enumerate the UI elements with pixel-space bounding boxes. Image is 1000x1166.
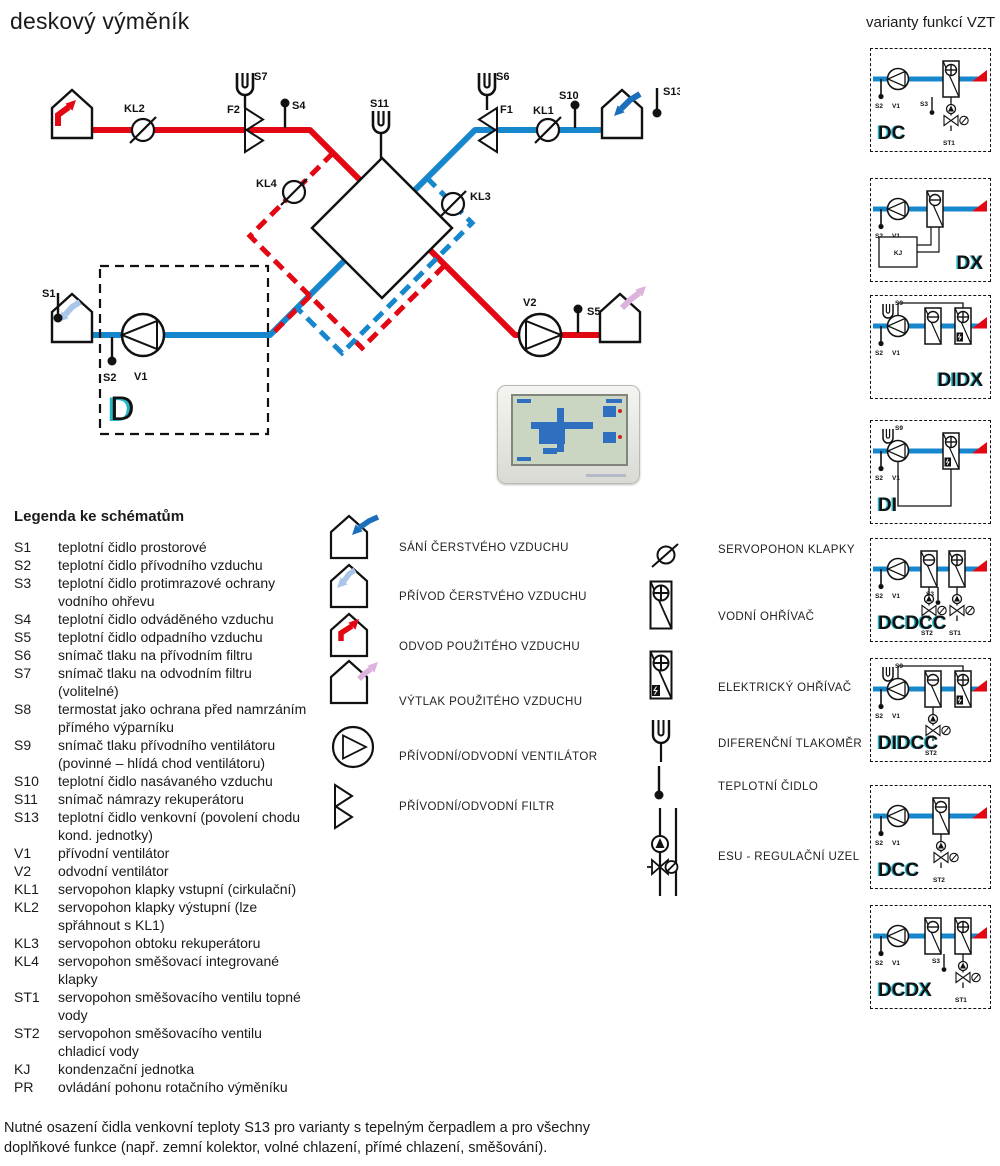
label-s11: S11 — [370, 98, 389, 110]
legend-def: servopohon klapky vstupní (cirkulační) — [58, 880, 312, 898]
label-s4: S4 — [292, 100, 306, 112]
label-kl3: KL3 — [470, 191, 491, 203]
variant-label: DC — [878, 123, 906, 144]
legend-def: snímač tlaku na odvodním filtru (volitel… — [58, 664, 312, 700]
legend-term: S9 — [14, 736, 58, 772]
variant-mini-schematic: S2V1S9DIDI — [871, 421, 989, 522]
variant-dcdx: S2V1S3ST1DCDXDCDX — [870, 905, 991, 1009]
mini-gauge-s9 — [883, 304, 893, 318]
water-heater-icon — [649, 580, 673, 630]
svg-text:S2: S2 — [875, 713, 883, 720]
legend-def: teplotní čidlo odpadního vzduchu — [58, 628, 312, 646]
legend-def: termostat jako ochrana před namrzáním př… — [58, 700, 312, 736]
variant-mini-schematic: S2V1S3ST1DCDC — [871, 49, 989, 150]
svg-text:V1: V1 — [892, 475, 900, 482]
sensor-s4 — [281, 99, 290, 129]
footnote-line2: doplňkové funkce (např. zemní kolektor, … — [4, 1138, 590, 1158]
svg-text:S9: S9 — [895, 425, 903, 432]
variant-label: DX — [957, 253, 984, 274]
legend-term: S6 — [14, 646, 58, 664]
svg-text:V1: V1 — [892, 840, 900, 847]
svg-text:ST1: ST1 — [955, 997, 967, 1004]
legend-term: V2 — [14, 862, 58, 880]
legend-item: S1teplotní čidlo prostorové — [14, 538, 324, 556]
legend-item: S7snímač tlaku na odvodním filtru (volit… — [14, 664, 324, 700]
variant-didcc: S2V1S9ST2DIDCCDIDCC — [870, 658, 991, 762]
label-s5: S5 — [587, 306, 600, 318]
label-f2: F2 — [227, 104, 240, 116]
symbol-label: SERVOPOHON KLAPKY — [718, 544, 855, 556]
legend-term: KL2 — [14, 898, 58, 934]
variant-mini-schematic: S2V1ST2DCCDCC — [871, 786, 989, 887]
symbol-label: DIFERENČNÍ TLAKOMĚR — [718, 738, 862, 750]
controller-logo — [586, 474, 626, 477]
legend-term: ST1 — [14, 988, 58, 1024]
legend-term: ST2 — [14, 1024, 58, 1060]
variant-dcdcc: S2V1ST2S3ST1DCDCCDCDCC — [870, 538, 991, 642]
house-discharge-icon — [326, 657, 384, 707]
mini-red-wedge — [972, 807, 987, 819]
variant-mini-schematic: S2V1S9ST2DIDCCDIDCC — [871, 659, 989, 760]
label-kl1: KL1 — [533, 105, 554, 117]
legend-term: S13 — [14, 808, 58, 844]
legend-def: teplotní čidlo nasávaného vzduchu — [58, 772, 312, 790]
variant-di: S2V1S9DIDI — [870, 420, 991, 524]
filter-icon — [333, 783, 355, 831]
legend-def: teplotní čidlo odváděného vzduchu — [58, 610, 312, 628]
svg-text:V1: V1 — [892, 960, 900, 967]
label-v1: V1 — [134, 371, 147, 383]
legend-term: KL1 — [14, 880, 58, 898]
legend-term: S4 — [14, 610, 58, 628]
sensor-s5 — [574, 305, 583, 334]
symbol-label: VÝTLAK POUŽITÉHO VZDUCHU — [399, 696, 582, 708]
house-exhaust-from-room — [52, 90, 92, 138]
variant-didx: S2V1S9DIDXDIDX — [870, 295, 991, 399]
house-intake-icon — [328, 512, 384, 562]
legend-def: servopohon směšovací integrované klapky — [58, 952, 312, 988]
differential-manometer-icon — [650, 718, 672, 764]
legend-item: ST1servopohon směšovacího ventilu topné … — [14, 988, 324, 1024]
legend-term: S10 — [14, 772, 58, 790]
legend-def: teplotní čidlo venkovní (povolení chodu … — [58, 808, 312, 844]
svg-text:S3: S3 — [932, 958, 940, 965]
legend-term: S7 — [14, 664, 58, 700]
legend-item: S11snímač námrazy rekuperátoru — [14, 790, 324, 808]
legend-term: S11 — [14, 790, 58, 808]
mini-red-wedge — [972, 70, 987, 82]
legend-term: KJ — [14, 1060, 58, 1078]
label-s6: S6 — [496, 71, 509, 83]
mini-gauge-s9 — [883, 667, 893, 681]
fan-v2 — [519, 314, 561, 356]
svg-text:S2: S2 — [875, 840, 883, 847]
variant-mini-schematic: S2V1S9DIDXDIDX — [871, 296, 989, 397]
fan-icon — [330, 724, 376, 770]
legend-item: V1přívodní ventilátor — [14, 844, 324, 862]
label-s10: S10 — [559, 90, 579, 102]
svg-text:S3: S3 — [926, 591, 934, 598]
legend-title: Legenda ke schématům — [14, 508, 324, 525]
legend-term: PR — [14, 1078, 58, 1096]
controller-screen — [511, 394, 628, 466]
legend-term: S5 — [14, 628, 58, 646]
legend-item: S3teplotní čidlo protimrazové ochrany vo… — [14, 574, 324, 610]
legend-item: KL4servopohon směšovací integrované klap… — [14, 952, 324, 988]
legend-item: KL3servopohon obtoku rekuperátoru — [14, 934, 324, 952]
label-v2: V2 — [523, 297, 536, 309]
symbol-label: ELEKTRICKÝ OHŘÍVAČ — [718, 682, 852, 694]
variant-dc: S2V1S3ST1DCDC — [870, 48, 991, 152]
damper-kl2 — [130, 117, 156, 143]
svg-text:S2: S2 — [875, 593, 883, 600]
legend: Legenda ke schématům S1teplotní čidlo pr… — [14, 508, 324, 1096]
gauge-s7 — [237, 73, 253, 95]
variant-label: DIDX — [938, 370, 984, 391]
variant-mini-schematic: S2V1ST2S3ST1DCDCCDCDCC — [871, 539, 989, 640]
legend-def: ovládání pohonu rotačního výměníku — [58, 1078, 312, 1096]
mini-gauge-s9 — [883, 429, 893, 443]
svg-text:V1: V1 — [892, 103, 900, 110]
mini-red-wedge — [972, 927, 987, 939]
label-kl4: KL4 — [256, 178, 278, 190]
symbol-label: ESU - REGULAČNÍ UZEL — [718, 851, 860, 863]
symbol-label: ODVOD POUŽITÉHO VZDUCHU — [399, 641, 580, 653]
legend-item: S10teplotní čidlo nasávaného vzduchu — [14, 772, 324, 790]
damper-kl1 — [535, 117, 561, 143]
esu-node-icon — [647, 808, 681, 900]
legend-term: S2 — [14, 556, 58, 574]
label-kl2: KL2 — [124, 103, 145, 115]
symbol-label: SÁNÍ ČERSTVÉHO VZDUCHU — [399, 542, 569, 554]
legend-item: KL2servopohon klapky výstupní (lze spřáh… — [14, 898, 324, 934]
legend-def: servopohon směšovacího ventilu chladicí … — [58, 1024, 312, 1060]
house-supply-icon — [328, 561, 384, 611]
legend-item: V2odvodní ventilátor — [14, 862, 324, 880]
page: deskový výměník varianty funkcí VZT — [0, 0, 1000, 1166]
variant-label: DIDCC — [878, 733, 938, 754]
house-fresh-intake — [602, 90, 642, 138]
legend-def: přívodní ventilátor — [58, 844, 312, 862]
legend-item: S9snímač tlaku přívodního ventilátoru (p… — [14, 736, 324, 772]
footnote-line1: Nutné osazení čidla venkovní teploty S13… — [4, 1118, 590, 1138]
variant-mini-schematic: S2V1KJDXDX — [871, 179, 989, 280]
variant-dx: S2V1KJDXDX — [870, 178, 991, 282]
label-s7: S7 — [254, 71, 267, 83]
legend-item: S4teplotní čidlo odváděného vzduchu — [14, 610, 324, 628]
legend-def: kondenzační jednotka — [58, 1060, 312, 1078]
label-s13: S13 — [663, 86, 680, 98]
variant-label: DCC — [878, 860, 919, 881]
temperature-sensor-icon — [653, 766, 665, 800]
legend-item: ST2servopohon směšovacího ventilu chladi… — [14, 1024, 324, 1060]
controller-panel — [497, 385, 640, 484]
svg-text:ST2: ST2 — [933, 877, 945, 884]
svg-text:S3: S3 — [920, 101, 928, 108]
variants-header: varianty funkcí VZT — [866, 14, 995, 31]
legend-list: S1teplotní čidlo prostorovéS2teplotní či… — [14, 538, 324, 1096]
damper-kl4 — [281, 179, 307, 205]
variant-dcc: S2V1ST2DCCDCC — [870, 785, 991, 889]
svg-text:S2: S2 — [875, 960, 883, 967]
legend-term: S3 — [14, 574, 58, 610]
legend-term: S1 — [14, 538, 58, 556]
legend-item: KL1servopohon klapky vstupní (cirkulační… — [14, 880, 324, 898]
legend-term: S8 — [14, 700, 58, 736]
house-extract-icon — [328, 610, 384, 660]
legend-def: teplotní čidlo prostorové — [58, 538, 312, 556]
sensor-s2 — [108, 337, 117, 366]
legend-item: S13teplotní čidlo venkovní (povolení cho… — [14, 808, 324, 844]
svg-text:S2: S2 — [875, 350, 883, 357]
fan-v1 — [122, 314, 164, 356]
sensor-s13 — [653, 88, 662, 118]
legend-def: snímač námrazy rekuperátoru — [58, 790, 312, 808]
sensor-s10 — [571, 101, 580, 129]
label-s2: S2 — [103, 372, 116, 384]
symbol-label: VODNÍ OHŘÍVAČ — [718, 611, 814, 623]
legend-def: servopohon směšovacího ventilu topné vod… — [58, 988, 312, 1024]
legend-def: odvodní ventilátor — [58, 862, 312, 880]
legend-term: V1 — [14, 844, 58, 862]
gauge-s6 — [479, 73, 495, 95]
variant-mini-schematic: S2V1S3ST1DCDXDCDX — [871, 906, 989, 1007]
symbol-label: PŘÍVODNÍ/ODVODNÍ FILTR — [399, 801, 555, 813]
variant-label: DCDCC — [878, 613, 947, 634]
legend-item: S6snímač tlaku na přívodním filtru — [14, 646, 324, 664]
legend-item: KJkondenzační jednotka — [14, 1060, 324, 1078]
svg-text:S2: S2 — [875, 475, 883, 482]
gauge-s11 — [373, 111, 389, 133]
svg-text:S9: S9 — [895, 663, 903, 670]
svg-text:S9: S9 — [895, 300, 903, 307]
label-s1: S1 — [42, 288, 55, 300]
legend-def: snímač tlaku přívodního ventilátoru (pov… — [58, 736, 312, 772]
svg-text:KJ: KJ — [894, 250, 903, 257]
house-discharge-outside — [600, 286, 646, 342]
svg-text:V1: V1 — [892, 713, 900, 720]
svg-text:S2: S2 — [875, 103, 883, 110]
label-f1: F1 — [500, 104, 513, 116]
legend-def: snímač tlaku na přívodním filtru — [58, 646, 312, 664]
electric-heater-icon — [649, 650, 673, 700]
legend-def: teplotní čidlo protimrazové ochrany vodn… — [58, 574, 312, 610]
legend-item: S8termostat jako ochrana před namrzáním … — [14, 700, 324, 736]
svg-text:ST1: ST1 — [949, 630, 961, 637]
symbol-label: PŘÍVOD ČERSTVÉHO VZDUCHU — [399, 591, 587, 603]
variant-label: DCDX — [878, 980, 932, 1001]
legend-def: servopohon klapky výstupní (lze spřáhnou… — [58, 898, 312, 934]
svg-text:ST1: ST1 — [943, 140, 955, 147]
d-label: D — [110, 390, 135, 428]
mini-red-wedge — [972, 680, 987, 692]
legend-item: PRovládání pohonu rotačního výměníku — [14, 1078, 324, 1096]
legend-item: S5teplotní čidlo odpadního vzduchu — [14, 628, 324, 646]
symbol-label: TEPLOTNÍ ČIDLO — [718, 781, 818, 793]
svg-text:V1: V1 — [892, 593, 900, 600]
mini-red-wedge — [972, 560, 987, 572]
variant-label: DI — [878, 495, 897, 516]
legend-term: KL4 — [14, 952, 58, 988]
footnote: Nutné osazení čidla venkovní teploty S13… — [4, 1118, 590, 1158]
legend-item: S2teplotní čidlo přívodního vzduchu — [14, 556, 324, 574]
symbol-label: PŘÍVODNÍ/ODVODNÍ VENTILÁTOR — [399, 751, 597, 763]
legend-term: KL3 — [14, 934, 58, 952]
damper-actuator-icon — [646, 538, 684, 572]
svg-text:V1: V1 — [892, 350, 900, 357]
legend-def: servopohon obtoku rekuperátoru — [58, 934, 312, 952]
legend-def: teplotní čidlo přívodního vzduchu — [58, 556, 312, 574]
